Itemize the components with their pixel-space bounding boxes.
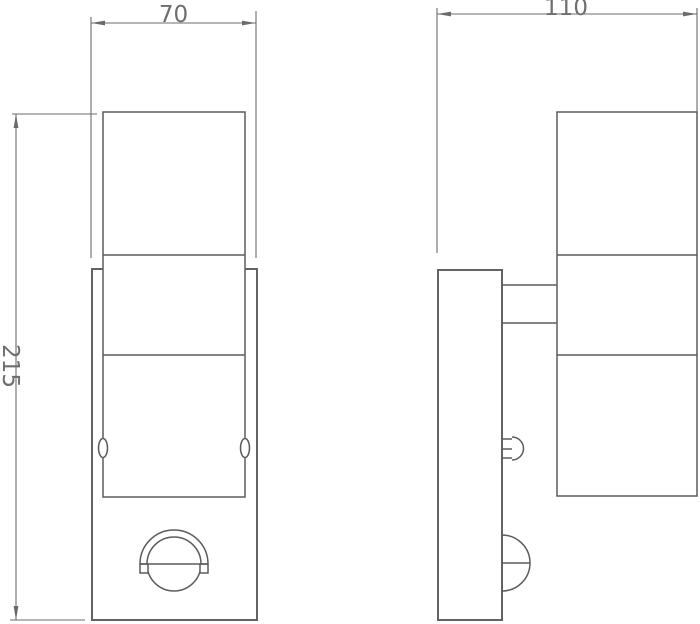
arrowhead-right: [242, 21, 256, 26]
side-screw-right: [241, 439, 250, 458]
dim-label-overall-height: 215: [0, 344, 23, 388]
arrowhead-right: [683, 12, 697, 17]
front-view: [92, 112, 257, 620]
screw-side: [502, 437, 524, 460]
screw-dome-arc: [512, 437, 524, 460]
technical-drawing: 70 215: [0, 0, 700, 624]
sensor-hood-tab-right: [200, 564, 208, 573]
side-screw-left: [99, 439, 108, 458]
motion-sensor-side: [502, 535, 530, 591]
arrowhead-bottom: [14, 606, 19, 620]
lamp-body-side: [557, 112, 697, 496]
sensor-hood-tab-left: [140, 564, 148, 573]
drawing-canvas: 70 215: [0, 0, 700, 624]
lamp-body-front: [103, 112, 245, 497]
wall-plate-side: [438, 270, 502, 620]
arrowhead-left: [437, 12, 451, 17]
arrowhead-left: [91, 21, 105, 26]
arrowhead-top: [14, 114, 19, 128]
dim-overall-height: 215: [0, 114, 97, 620]
dim-label-side-depth: 110: [544, 0, 588, 21]
side-view: [438, 112, 697, 620]
dim-label-front-width: 70: [159, 2, 188, 28]
